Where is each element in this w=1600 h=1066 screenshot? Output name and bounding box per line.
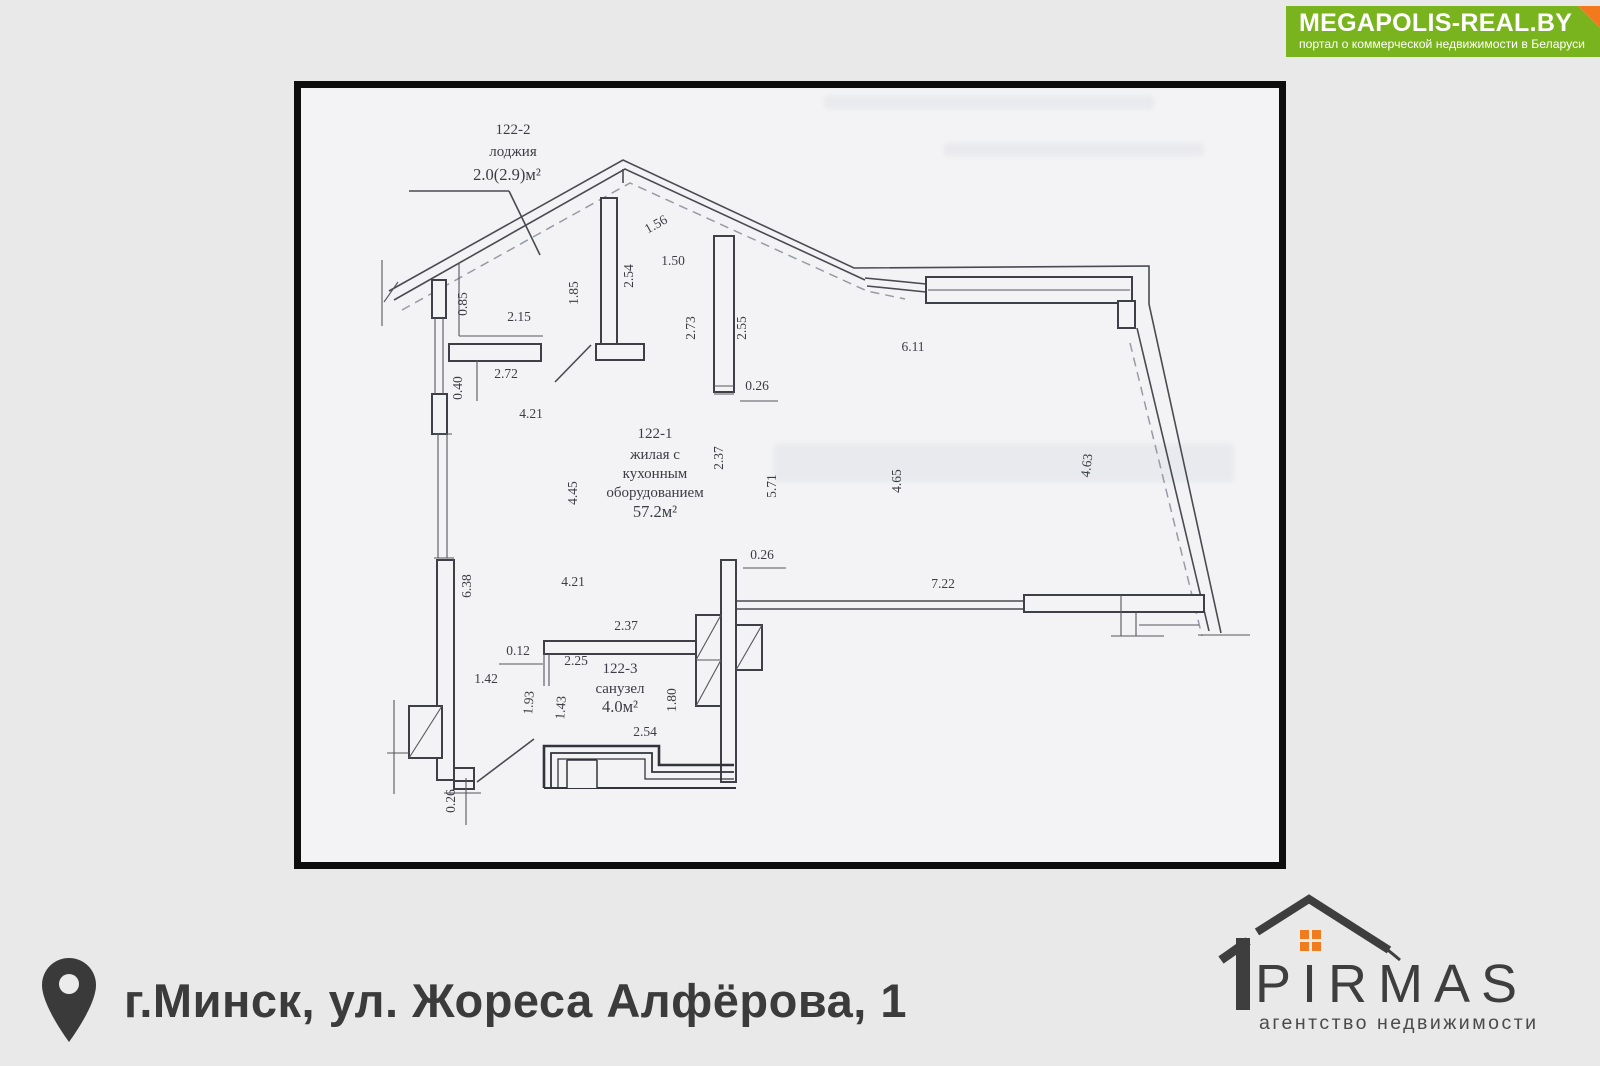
dim-label: 2.55 — [734, 316, 749, 340]
room-area: 2.0(2.9)м² — [473, 165, 541, 184]
megapolis-title: MEGAPOLIS-REAL.BY — [1299, 9, 1588, 37]
agency-tagline: агентство недвижимости — [1259, 1012, 1539, 1034]
dim-label: 4.21 — [561, 574, 585, 589]
dim-label: 0.26 — [443, 789, 458, 813]
dim-label: 4.21 — [519, 406, 543, 421]
window-icon — [1300, 930, 1321, 951]
dim-label: 0.26 — [750, 547, 774, 562]
dim-label: 2.37 — [711, 446, 726, 470]
room-id: 122-1 — [638, 426, 673, 442]
exterior-walls — [389, 160, 1221, 633]
address-text: г.Минск, ул. Жореса Алфёрова, 1 — [124, 973, 907, 1028]
location-pin-icon — [40, 956, 98, 1044]
dim-label: 0.26 — [745, 378, 769, 393]
room-name: оборудованием — [606, 485, 704, 501]
dim-label: 0.85 — [455, 292, 470, 316]
dim-label: 2.15 — [507, 309, 531, 324]
dim-label: 1.43 — [552, 695, 569, 720]
dim-label: 2.25 — [564, 653, 588, 668]
address-bar: г.Минск, ул. Жореса Алфёрова, 1 — [40, 952, 907, 1048]
dim-label: 4.45 — [565, 481, 580, 505]
dimension-ticks — [382, 260, 1250, 794]
floor-plan: 122-2 лоджия 2.0(2.9)м² 122-1 жилая с ку… — [294, 81, 1286, 869]
dim-label: 1.80 — [664, 688, 679, 712]
dim-label: 2.73 — [683, 316, 698, 340]
megapolis-logo: MEGAPOLIS-REAL.BY портал о коммерческой … — [1286, 6, 1600, 57]
dim-label: 2.72 — [494, 366, 518, 381]
ventilation-shafts — [409, 615, 762, 758]
room-labels: 122-2 лоджия 2.0(2.9)м² 122-1 жилая с ку… — [473, 122, 704, 716]
dim-label: 1.56 — [642, 212, 670, 237]
room-name: лоджия — [489, 144, 537, 160]
room-name: жилая с — [629, 447, 680, 463]
bathroom-bottom-wall — [544, 746, 736, 788]
megapolis-subtitle: портал о коммерческой недвижимости в Бел… — [1299, 37, 1588, 51]
dim-label: 6.11 — [901, 339, 924, 354]
pirmas-logo: PIRMAS агентство недвижимости — [1185, 880, 1597, 1062]
dim-label: 7.22 — [931, 576, 955, 591]
agency-name: PIRMAS — [1255, 954, 1528, 1014]
dim-label: 1.85 — [566, 281, 581, 305]
floor-plan-drawing: 122-2 лоджия 2.0(2.9)м² 122-1 жилая с ку… — [301, 88, 1279, 862]
dim-label: 1.42 — [474, 671, 498, 686]
wall-blocks — [432, 198, 1204, 789]
room-area: 57.2м² — [633, 502, 677, 521]
balcony-interior-lines — [459, 264, 549, 686]
dim-label: 4.65 — [889, 469, 904, 493]
dim-label: 5.71 — [764, 474, 779, 498]
room-id: 122-2 — [496, 122, 531, 138]
dim-label: 0.40 — [450, 376, 465, 400]
dim-label: 0.12 — [506, 643, 530, 658]
dim-label: 2.54 — [621, 264, 636, 288]
room-name: санузел — [595, 681, 645, 697]
listing-image: MEGAPOLIS-REAL.BY портал о коммерческой … — [0, 0, 1600, 1066]
dim-label: 4.63 — [1078, 453, 1096, 479]
room-area: 4.0м² — [602, 697, 638, 716]
dim-label: 1.50 — [661, 253, 685, 268]
room-name: кухонным — [623, 466, 688, 482]
dim-label: 2.54 — [633, 724, 657, 739]
dim-label: 6.38 — [459, 574, 474, 598]
dim-label: 2.37 — [614, 618, 638, 633]
dim-label: 1.93 — [520, 690, 537, 715]
room-id: 122-3 — [603, 661, 638, 677]
